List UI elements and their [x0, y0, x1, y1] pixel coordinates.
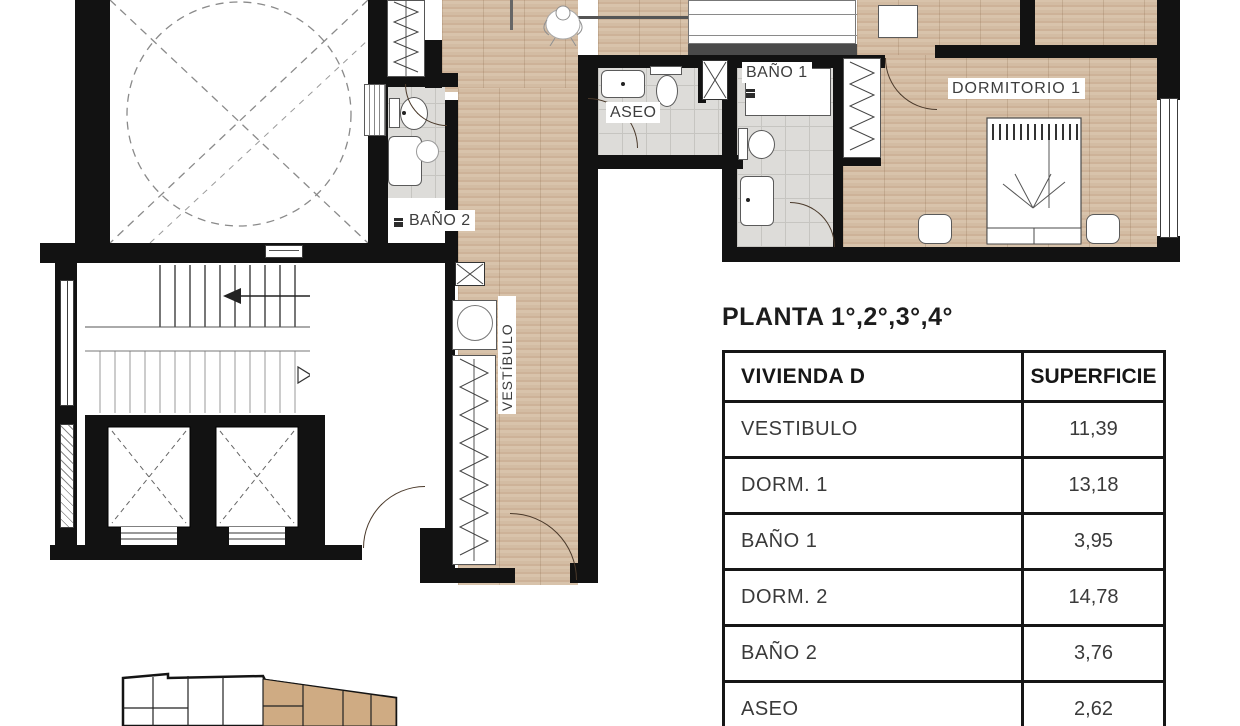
row-label: ASEO	[725, 683, 1024, 726]
row-label: DORM. 1	[725, 459, 1024, 512]
table-header-row: VIVIENDA D SUPERFICIE	[725, 353, 1163, 400]
table-row: DORM. 2 14,78	[725, 568, 1163, 624]
toilet-flush-dot	[402, 111, 406, 115]
balcony	[688, 0, 856, 44]
side-table-icon	[878, 5, 918, 38]
shaft-x-aseo	[702, 60, 728, 100]
nightstand-icon	[1086, 214, 1120, 244]
closet-dormitorio-icon	[843, 58, 881, 158]
threshold-line	[269, 250, 299, 251]
table-row: ASEO 2,62	[725, 680, 1163, 726]
nightstand-icon	[918, 214, 952, 244]
toilet-tank-icon	[389, 98, 400, 128]
key-plan	[113, 666, 403, 726]
room-label-text: BAÑO 2	[409, 212, 471, 229]
patio-lightwell	[110, 0, 368, 243]
row-label: DORM. 2	[725, 571, 1024, 624]
shaft-slot	[60, 424, 74, 528]
aseo-toilet-tank-icon	[650, 66, 682, 75]
person-figure	[527, 0, 599, 46]
bano1-tray-dot	[746, 198, 750, 202]
floor-living-strip	[598, 0, 688, 55]
shaft-x-vestibulo	[455, 262, 485, 286]
row-label: BAÑO 1	[725, 515, 1024, 568]
bano1-tray-icon	[740, 176, 774, 226]
table-row: BAÑO 1 3,95	[725, 512, 1163, 568]
closet-top-icon	[387, 0, 425, 77]
room-label-bano1: BAÑO 1	[742, 62, 812, 83]
table-header-area: SUPERFICIE	[1024, 353, 1163, 400]
balcony-frame-line	[689, 35, 857, 36]
balcony-frame-line	[689, 14, 857, 15]
wall-closet-stub	[425, 40, 442, 88]
dormitorio-window	[1160, 98, 1178, 238]
room-label-vestibulo: VESTÍBULO	[498, 296, 516, 414]
surface-table: VIVIENDA D SUPERFICIE VESTIBULO 11,39 DO…	[722, 350, 1166, 726]
towel-rail-icon	[746, 86, 755, 98]
washer-drum-icon	[457, 305, 493, 341]
row-value: 3,95	[1024, 515, 1163, 568]
wall-dorm-right-top	[1157, 0, 1180, 100]
towel-rail-icon	[394, 215, 403, 227]
stair-threshold	[265, 245, 303, 258]
wall-patio-left	[75, 0, 110, 243]
vanity-icon	[388, 136, 422, 186]
room-label-dormitorio1: DORMITORIO 1	[948, 78, 1085, 99]
table-header-unit: VIVIENDA D	[725, 353, 1024, 400]
row-label: VESTIBULO	[725, 403, 1024, 456]
closet-vestibulo-icon	[452, 355, 496, 565]
row-value: 2,62	[1024, 683, 1163, 726]
row-value: 3,76	[1024, 627, 1163, 680]
wall-vestibulo-bottom-left	[445, 568, 515, 583]
wall-dorm-closet-left	[833, 55, 843, 247]
wall-aseo-bano1-top	[598, 55, 858, 68]
wall-corridor-right	[578, 160, 598, 583]
row-value: 11,39	[1024, 403, 1163, 456]
radiator-icon	[364, 84, 386, 136]
page-title: PLANTA 1°,2°,3°,4°	[722, 303, 953, 332]
elevators	[85, 415, 325, 545]
bano1-toilet-tank-icon	[738, 128, 748, 160]
wall-dorm-top	[935, 45, 1180, 58]
table-row: BAÑO 2 3,76	[725, 624, 1163, 680]
wall-dorm-bottom	[722, 247, 1180, 262]
row-value: 14,78	[1024, 571, 1163, 624]
living-railing-post	[510, 0, 513, 30]
aseo-sink-dot	[621, 82, 625, 86]
staircase	[85, 263, 310, 415]
row-value: 13,18	[1024, 459, 1163, 512]
table-row: DORM. 1 13,18	[725, 456, 1163, 512]
wall-hall-bottom	[50, 545, 362, 560]
balcony-sill	[688, 44, 857, 55]
wall-void-top	[578, 155, 743, 169]
wall-top-strip-divider	[1020, 0, 1035, 45]
row-label: BAÑO 2	[725, 627, 1024, 680]
bano1-toilet-bowl-icon	[748, 130, 775, 159]
wall-hall-top	[40, 243, 458, 263]
room-label-bano2: BAÑO 2	[390, 210, 475, 231]
table-row: VESTIBULO 11,39	[725, 400, 1163, 456]
person-head-icon	[416, 140, 439, 163]
door-arc-hall	[363, 486, 425, 548]
floorplan-page: BAÑO 2 ASEO BAÑO 1 DORMITORIO 1 VESTÍBUL…	[0, 0, 1240, 726]
wall-dorm-closet-bottom	[843, 158, 881, 166]
bed-icon	[985, 110, 1085, 252]
stair-window	[60, 280, 74, 406]
room-label-aseo: ASEO	[606, 102, 660, 123]
